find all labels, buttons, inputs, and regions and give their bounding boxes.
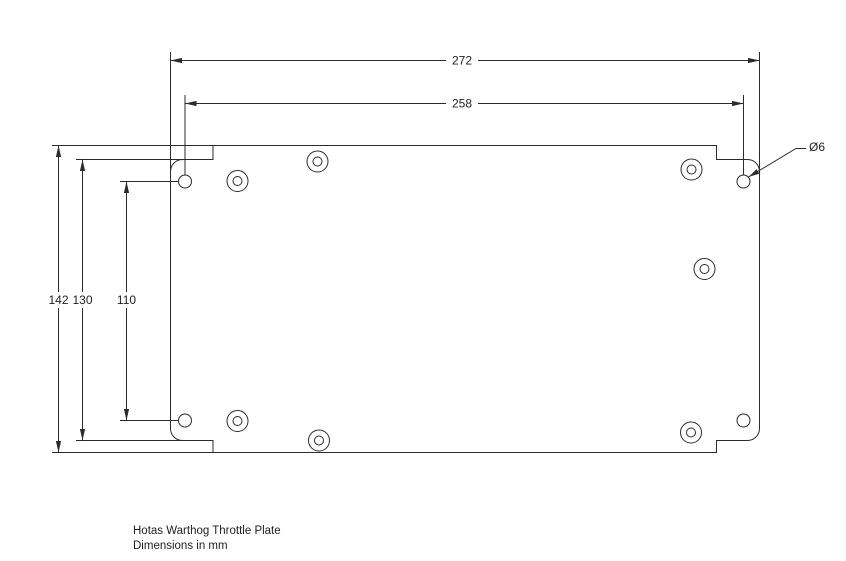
ring-hole-inner-circle xyxy=(315,436,324,445)
ring-hole-outer-circle xyxy=(681,422,702,443)
ring-hole-outer-circle xyxy=(309,430,330,451)
dimension-value-notch-height: 130 xyxy=(72,293,92,307)
arrowhead-leader xyxy=(749,169,760,177)
ring-hole-mid-right xyxy=(694,259,715,280)
corner-hole-bottom-right xyxy=(737,414,750,427)
arrowhead-down xyxy=(124,409,129,421)
arrowhead-up xyxy=(124,182,129,194)
dimension-value-hole-span-height: 110 xyxy=(117,293,136,307)
ring-hole-top-left xyxy=(227,171,248,192)
dimension-value-overall-width: 272 xyxy=(452,54,472,68)
dimension-value-overall-height: 142 xyxy=(48,293,68,307)
ring-hole-inner-circle xyxy=(233,417,242,426)
ring-hole-bottom-left xyxy=(227,411,248,432)
drawing-page: 272 258 142 xyxy=(0,0,846,561)
dimension-value-hole-diameter: Ø6 xyxy=(809,140,825,154)
arrowhead-down xyxy=(56,441,61,453)
corner-hole-bottom-left xyxy=(179,414,192,427)
ring-hole-outer-circle xyxy=(681,159,702,180)
ring-hole-inner-circle xyxy=(687,428,696,437)
ring-hole-outer-circle xyxy=(307,151,328,172)
ring-hole-inner-circle xyxy=(700,265,709,274)
ring-hole-top-right xyxy=(681,159,702,180)
ring-hole-bottom-center xyxy=(309,430,330,451)
plate-outline xyxy=(171,146,760,453)
ring-hole-bottom-right xyxy=(681,422,702,443)
arrowhead-right xyxy=(748,58,760,63)
dimension-value-hole-span-width: 258 xyxy=(452,97,472,111)
ring-hole-inner-circle xyxy=(687,165,696,174)
technical-drawing-canvas: 272 258 142 xyxy=(0,0,846,561)
dimension-overall-width: 272 xyxy=(171,52,760,172)
ring-hole-inner-circle xyxy=(233,177,242,186)
caption: Hotas Warthog Throttle Plate Dimensions … xyxy=(133,525,281,552)
arrowhead-up xyxy=(56,146,61,158)
ring-hole-outer-circle xyxy=(227,411,248,432)
arrowhead-left xyxy=(171,58,183,63)
arrowhead-left xyxy=(185,101,197,106)
dimension-hole-span-width: 258 xyxy=(185,95,744,175)
ring-hole-top-center xyxy=(307,151,328,172)
ring-hole-outer-circle xyxy=(227,171,248,192)
corner-hole-top-left xyxy=(179,175,192,188)
leader-hole-diameter: Ø6 xyxy=(749,140,826,177)
caption-units: Dimensions in mm xyxy=(133,540,228,552)
ring-hole-inner-circle xyxy=(313,157,322,166)
arrowhead-right xyxy=(732,101,744,106)
caption-title: Hotas Warthog Throttle Plate xyxy=(133,525,281,537)
arrowhead-up xyxy=(80,160,85,172)
ring-hole-outer-circle xyxy=(694,259,715,280)
corner-hole-top-right xyxy=(737,175,750,188)
arrowhead-down xyxy=(80,429,85,441)
dimension-hole-span-height: 110 xyxy=(117,182,179,421)
